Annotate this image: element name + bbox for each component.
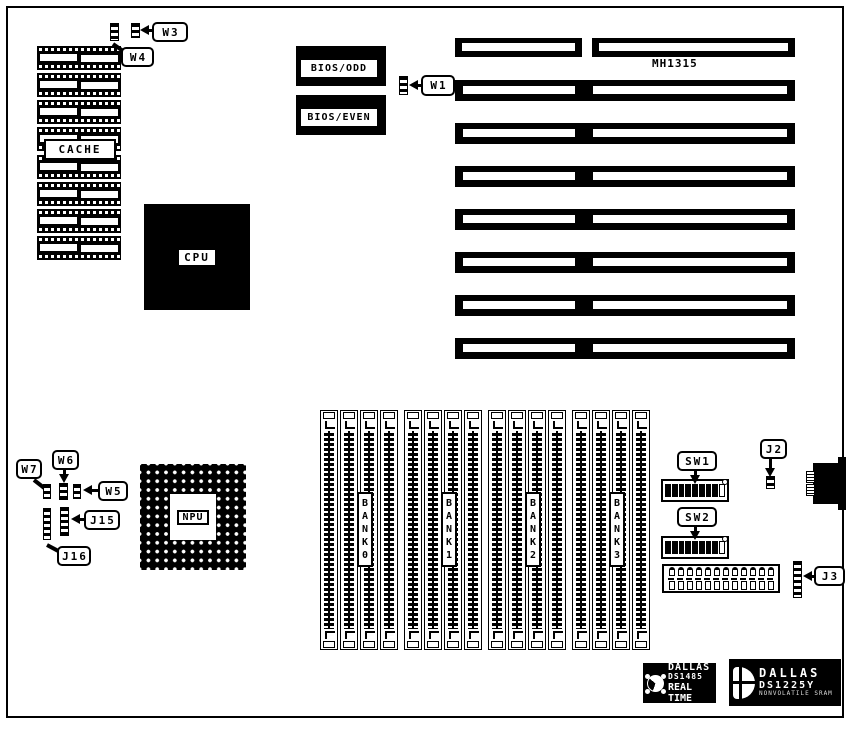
power-pin-hole <box>741 581 747 590</box>
simm-tab <box>427 412 439 419</box>
chip-pins <box>37 90 121 97</box>
w6-callout: W6 <box>52 450 79 470</box>
power-pin <box>759 567 765 576</box>
simm-latch-icon <box>446 419 460 430</box>
simm-latch-icon <box>406 630 420 641</box>
expansion-slot <box>455 252 795 273</box>
j2-arrow-icon <box>765 468 775 477</box>
power-pin <box>741 567 747 576</box>
dip-switch-position <box>679 484 685 497</box>
slot-opening <box>463 301 575 309</box>
simm-contacts <box>596 431 606 629</box>
keyboard-din-pins <box>806 471 815 483</box>
slot-opening <box>593 301 787 309</box>
bios-odd-chip: BIOS/ODD <box>296 46 386 86</box>
dip-switch-position <box>712 541 718 554</box>
bios-even-label: BIOS/EVEN <box>299 107 379 128</box>
dip-switch-position-off <box>719 484 725 497</box>
slot-opening <box>593 129 787 137</box>
w6-label: W6 <box>58 454 75 467</box>
power-pin-row <box>667 567 775 576</box>
simm-tab <box>615 641 627 648</box>
keyboard-connector-bracket <box>838 457 846 510</box>
bios-even-chip: BIOS/EVEN <box>296 95 386 135</box>
power-divider <box>668 578 774 580</box>
simm-tab <box>635 412 647 419</box>
chip-pins <box>37 172 121 179</box>
dip-switch-position <box>685 484 691 497</box>
npu-socket: NPU <box>140 464 246 570</box>
simm-slot <box>508 410 526 650</box>
simm-tab <box>427 641 439 648</box>
simm-tab <box>511 412 523 419</box>
slot-opening <box>463 215 575 223</box>
slot-opening <box>593 86 787 94</box>
w4-callout: W4 <box>121 47 154 67</box>
w5-callout: W5 <box>98 481 128 501</box>
expansion-slot <box>455 338 795 359</box>
power-pin-hole <box>723 581 729 590</box>
simm-latch-icon <box>382 630 396 641</box>
w7-label: W7 <box>21 463 38 476</box>
j3-label: J3 <box>822 570 839 583</box>
sw1-label: SW1 <box>685 455 711 468</box>
slot-opening <box>463 172 575 180</box>
power-pin-hole <box>678 581 684 590</box>
npu-label: NPU <box>177 510 208 525</box>
simm-contacts <box>492 431 502 629</box>
keyboard-connector <box>813 463 840 504</box>
slot-opening <box>463 344 575 352</box>
dip-switch-position <box>665 541 671 554</box>
simm-latch-icon <box>574 630 588 641</box>
w1-label: W1 <box>430 79 447 92</box>
expansion-slot <box>455 80 795 101</box>
simm-latch-icon <box>614 630 628 641</box>
simm-tab <box>323 412 335 419</box>
slot-opening <box>593 172 787 180</box>
cache-chip-row <box>37 46 121 70</box>
simm-tab <box>635 641 647 648</box>
clock-icon <box>647 675 664 692</box>
cache-chip-row <box>37 236 121 260</box>
w5-jumper <box>73 484 81 499</box>
w4-jumper <box>110 23 119 41</box>
j15-jumper <box>60 507 69 536</box>
simm-latch-icon <box>426 630 440 641</box>
power-pin-hole <box>768 581 774 590</box>
cache-chip-row <box>37 209 121 233</box>
simm-slot <box>464 410 482 650</box>
simm-latch-icon <box>594 419 608 430</box>
simm-tab <box>363 641 375 648</box>
simm-contacts <box>408 431 418 629</box>
simm-contacts <box>428 431 438 629</box>
cache-label: CACHE <box>44 139 116 160</box>
simm-latch-icon <box>510 419 524 430</box>
j16-callout: J16 <box>57 546 91 566</box>
power-pin <box>750 567 756 576</box>
cpu-chip: CPU <box>144 204 250 310</box>
w4-label: W4 <box>130 51 147 64</box>
power-pin <box>687 567 693 576</box>
j2-callout: J2 <box>760 439 787 459</box>
simm-tab <box>575 641 587 648</box>
simm-slot <box>488 410 506 650</box>
sw1-callout: SW1 <box>677 451 717 471</box>
simm-contacts <box>344 431 354 629</box>
dip-switch-position <box>712 484 718 497</box>
j16-jumper <box>43 508 51 540</box>
simm-contacts <box>324 431 334 629</box>
expansion-slot-area <box>455 38 795 360</box>
simm-tab <box>491 412 503 419</box>
simm-slot <box>592 410 610 650</box>
cache-chip-bodies <box>37 243 121 253</box>
keyboard-din-pins <box>806 484 815 496</box>
cache-chip <box>81 109 118 116</box>
simm-tab <box>467 641 479 648</box>
simm-contacts <box>384 431 394 629</box>
simm-latch-icon <box>510 630 524 641</box>
simm-tab <box>595 641 607 648</box>
simm-slot <box>548 410 566 650</box>
j15-callout: J15 <box>84 510 120 530</box>
chip-pins <box>37 253 121 260</box>
nvram-logo-text: DALLAS DS1225Y NONVOLATILE SRAM <box>759 667 833 698</box>
cache-chip <box>81 164 118 171</box>
simm-latch-icon <box>550 630 564 641</box>
sw2-callout: SW2 <box>677 507 717 527</box>
simm-slot <box>424 410 442 650</box>
simm-latch-icon <box>574 419 588 430</box>
power-pin <box>768 567 774 576</box>
simm-bank: BANK3 <box>572 410 650 650</box>
nvram-tagline: NONVOLATILE SRAM <box>759 691 833 698</box>
j2-jumper <box>766 476 775 489</box>
board-model-label: MH1315 <box>652 57 698 70</box>
sw2-arrow-icon <box>690 531 700 540</box>
slot-opening <box>463 258 575 266</box>
simm-latch-icon <box>426 419 440 430</box>
slot-opening <box>463 86 575 94</box>
power-pin-hole <box>705 581 711 590</box>
power-pin <box>732 567 738 576</box>
chip-pins <box>37 73 121 80</box>
simm-contacts <box>468 431 478 629</box>
power-pin <box>669 567 675 576</box>
slot-opening <box>593 215 787 223</box>
power-pin <box>678 567 684 576</box>
cache-chip-bodies <box>37 80 121 90</box>
simm-latch-icon <box>362 630 376 641</box>
slot-opening <box>463 129 575 137</box>
rtc-part-number: DS1485 <box>668 673 712 682</box>
simm-tab <box>407 412 419 419</box>
chip-pins <box>37 100 121 107</box>
cache-chip-bodies <box>37 53 121 63</box>
nvram-chip-logo: DALLAS DS1225Y NONVOLATILE SRAM <box>729 659 841 706</box>
power-pin <box>723 567 729 576</box>
slot-opening <box>599 43 788 51</box>
dip-switch-position <box>692 541 698 554</box>
cache-chip <box>81 82 118 89</box>
simm-tab <box>447 641 459 648</box>
simm-tab <box>575 412 587 419</box>
power-pin <box>714 567 720 576</box>
cache-chip <box>81 218 118 225</box>
simm-latch-icon <box>342 630 356 641</box>
cache-chip-bodies <box>37 162 121 172</box>
slot-opening <box>593 344 787 352</box>
simm-tab <box>551 641 563 648</box>
cache-chip <box>40 81 77 88</box>
cache-chip <box>81 55 118 62</box>
cache-chip <box>40 244 77 251</box>
rtc-tagline: REAL TIME <box>668 682 712 704</box>
simm-slot <box>380 410 398 650</box>
j16-label: J16 <box>62 550 88 563</box>
cache-chip-bodies <box>37 216 121 226</box>
sw2-label: SW2 <box>685 511 711 524</box>
simm-latch-icon <box>466 419 480 430</box>
simm-tab <box>511 641 523 648</box>
bank-label: BANK3 <box>609 492 625 567</box>
simm-tab <box>363 412 375 419</box>
power-pin <box>696 567 702 576</box>
simm-latch-icon <box>550 419 564 430</box>
w5-arrow-line <box>91 489 98 492</box>
dip-switch-position <box>685 541 691 554</box>
expansion-slot <box>455 123 795 144</box>
simm-bank: BANK0 <box>320 410 398 650</box>
simm-contacts <box>636 431 646 629</box>
j2-label: J2 <box>766 443 783 456</box>
slot-opening <box>593 258 787 266</box>
simm-bank: BANK1 <box>404 410 482 650</box>
cache-chip <box>40 108 77 115</box>
j15-label: J15 <box>90 514 116 527</box>
simm-tab <box>447 412 459 419</box>
expansion-slot <box>455 166 795 187</box>
simm-latch-icon <box>382 419 396 430</box>
slot-opening <box>462 43 575 51</box>
simm-tab <box>383 641 395 648</box>
w3-label: W3 <box>162 26 179 39</box>
j3-callout: J3 <box>814 566 845 586</box>
chip-pins <box>37 46 121 53</box>
power-pin-hole <box>714 581 720 590</box>
bank-label: BANK2 <box>525 492 541 567</box>
cache-chip <box>40 190 77 197</box>
cache-chip <box>81 245 118 252</box>
dip-switch-position <box>706 484 712 497</box>
simm-tab <box>551 412 563 419</box>
bank-label: BANK1 <box>441 492 457 567</box>
motherboard-diagram: CACHE W3 W4 CPU BIOS/ODD BIOS/EVEN W1 MH… <box>0 0 851 729</box>
simm-socket-area: BANK0BANK1BANK2BANK3 <box>320 410 656 650</box>
simm-tab <box>343 641 355 648</box>
w1-callout: W1 <box>421 75 455 96</box>
simm-latch-icon <box>530 630 544 641</box>
simm-tab <box>531 641 543 648</box>
cache-chip <box>81 191 118 198</box>
power-pin-row <box>667 581 775 590</box>
npu-socket-center: NPU <box>170 494 216 540</box>
w7-callout: W7 <box>16 459 42 479</box>
simm-latch-icon <box>342 419 356 430</box>
expansion-slot <box>455 295 795 316</box>
dip-switch-position <box>665 484 671 497</box>
cache-chip-bodies <box>37 189 121 199</box>
power-pin-hole <box>687 581 693 590</box>
chip-pins <box>37 236 121 243</box>
w5-label: W5 <box>105 485 122 498</box>
power-pin-hole <box>750 581 756 590</box>
sw1-arrow-icon <box>690 475 700 484</box>
dallas-d-icon <box>733 667 755 699</box>
cache-chip <box>40 217 77 224</box>
power-pin-hole <box>732 581 738 590</box>
dip-switch-position <box>699 541 705 554</box>
simm-slot <box>340 410 358 650</box>
simm-bank: BANK2 <box>488 410 566 650</box>
dip-switch-position <box>672 541 678 554</box>
simm-slot <box>572 410 590 650</box>
w3-jumper <box>131 23 140 38</box>
dip-switch-position <box>699 484 705 497</box>
dip-switch-position <box>706 541 712 554</box>
dip-switch-position-off <box>719 541 725 554</box>
chip-pins <box>37 209 121 216</box>
simm-latch-icon <box>634 630 648 641</box>
simm-slot <box>320 410 338 650</box>
chip-pins <box>37 199 121 206</box>
expansion-slot <box>455 209 795 230</box>
expansion-slot <box>455 38 582 57</box>
nvram-brand: DALLAS <box>759 667 833 680</box>
simm-tab <box>615 412 627 419</box>
w3-callout: W3 <box>152 22 188 42</box>
simm-latch-icon <box>406 419 420 430</box>
cache-chip-bodies <box>37 107 121 117</box>
chip-pins <box>37 117 121 124</box>
simm-latch-icon <box>634 419 648 430</box>
simm-latch-icon <box>446 630 460 641</box>
cache-chip-row <box>37 73 121 97</box>
bank-label: BANK0 <box>357 492 373 567</box>
power-connector <box>662 564 780 593</box>
simm-tab <box>407 641 419 648</box>
chip-pins <box>37 182 121 189</box>
expansion-slot <box>592 38 795 57</box>
w6-arrow-icon <box>59 474 69 483</box>
simm-slot <box>632 410 650 650</box>
cache-chip <box>40 163 77 170</box>
power-pin-hole <box>759 581 765 590</box>
simm-latch-icon <box>322 419 336 430</box>
chip-pins <box>37 226 121 233</box>
simm-latch-icon <box>594 630 608 641</box>
chip-pins <box>37 127 121 134</box>
simm-tab <box>491 641 503 648</box>
simm-latch-icon <box>362 419 376 430</box>
simm-latch-icon <box>490 419 504 430</box>
simm-contacts <box>576 431 586 629</box>
simm-tab <box>531 412 543 419</box>
simm-tab <box>383 412 395 419</box>
rtc-chip-logo: DALLAS DS1485 REAL TIME <box>643 663 716 703</box>
simm-tab <box>467 412 479 419</box>
simm-slot <box>404 410 422 650</box>
dip-switch-position <box>672 484 678 497</box>
w6-jumper <box>59 483 68 500</box>
bios-odd-label: BIOS/ODD <box>299 58 379 79</box>
cpu-label: CPU <box>179 250 215 265</box>
simm-latch-icon <box>490 630 504 641</box>
simm-tab <box>595 412 607 419</box>
power-pin-hole <box>696 581 702 590</box>
cache-chip-row <box>37 100 121 124</box>
power-pin <box>705 567 711 576</box>
simm-tab <box>323 641 335 648</box>
rtc-logo-text: DALLAS DS1485 REAL TIME <box>668 662 712 704</box>
dip-switch-position <box>679 541 685 554</box>
simm-latch-icon <box>614 419 628 430</box>
simm-contacts <box>552 431 562 629</box>
simm-tab <box>343 412 355 419</box>
dip-switch-position <box>692 484 698 497</box>
simm-latch-icon <box>322 630 336 641</box>
power-pin-hole <box>669 581 675 590</box>
w1-jumper <box>399 76 408 95</box>
chip-pins <box>37 63 121 70</box>
simm-contacts <box>512 431 522 629</box>
simm-latch-icon <box>466 630 480 641</box>
cache-chip <box>40 54 77 61</box>
simm-latch-icon <box>530 419 544 430</box>
j3-jumper <box>793 561 802 598</box>
cache-chip-row <box>37 182 121 206</box>
